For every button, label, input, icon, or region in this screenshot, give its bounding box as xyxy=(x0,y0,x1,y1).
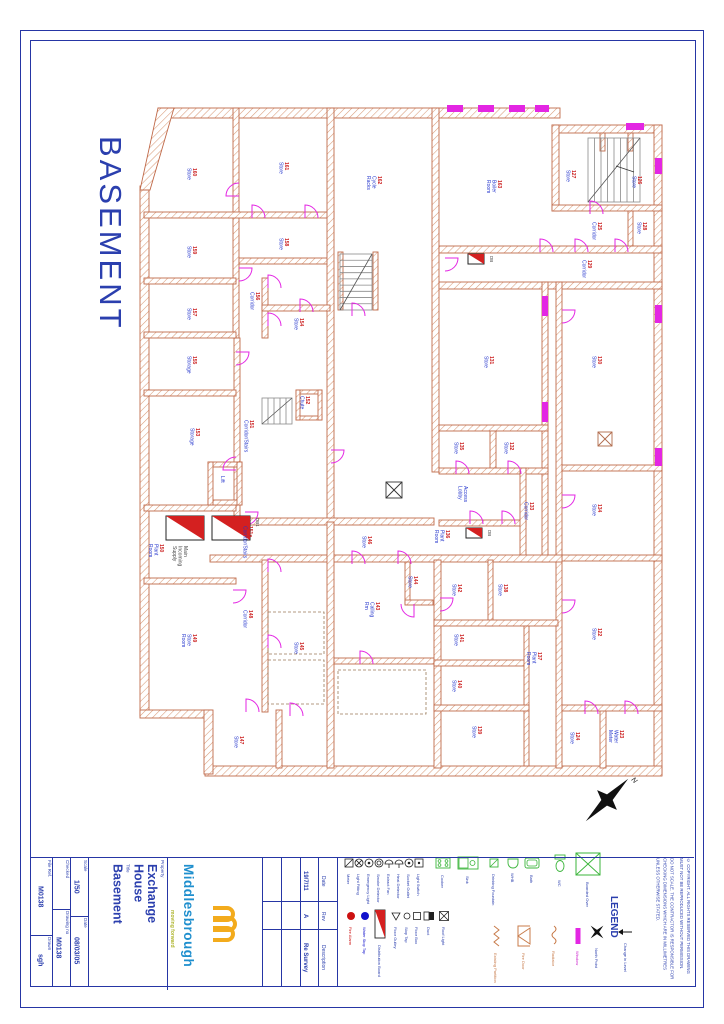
scale-value: 1/50 xyxy=(70,858,81,916)
copyright-block: © COPYRIGHT. ALL RIGHTS RESERVED THIS DR… xyxy=(645,858,691,982)
title-value: Basement xyxy=(110,860,124,988)
rev-row-date: 19/7/11 xyxy=(302,861,308,901)
logo-wordmark: Middlesbrough xyxy=(181,864,196,982)
file-ref-value: M0138 xyxy=(34,858,45,935)
drawing-no-value: M0138 xyxy=(52,909,63,986)
disclaimer-text: DO NOT SCALE. THE CONTRACTOR IS RESPONSI… xyxy=(651,858,675,982)
middlesbrough-logo-icon xyxy=(203,904,243,944)
property-title-cell: Property Exchange House Title Basement xyxy=(88,858,168,990)
date-value: 08/03/05 xyxy=(70,916,81,986)
scale-cell: Scale 1/50 xyxy=(70,858,89,917)
property-name-line2: House xyxy=(131,860,145,988)
drawn-value: sgh xyxy=(34,935,45,986)
rev-row-rev: A xyxy=(302,904,308,928)
drawing-sheet: DB1DBDB 160Store161Store159Store158Store… xyxy=(0,0,724,1024)
revision-table: Date Rev Description 19/7/11 A Re Survey xyxy=(262,858,338,986)
legend-title: LEGEND xyxy=(608,896,619,938)
title-label: Title xyxy=(124,860,131,988)
date-cell: Date 08/03/05 xyxy=(70,916,89,986)
sheet-title: BASEMENT xyxy=(92,136,128,331)
title-block: File Ref. M0138 Drawn sgh Checked Drawin… xyxy=(30,857,694,986)
copyright-text: © COPYRIGHT. ALL RIGHTS RESERVED THIS DR… xyxy=(674,858,691,982)
drawn-cell: Drawn sgh xyxy=(30,935,53,986)
property-name-line1: Exchange xyxy=(144,860,158,988)
rev-date-header: Date xyxy=(320,862,326,900)
rev-description-header: Description xyxy=(320,932,326,984)
rev-rev-header: Rev xyxy=(320,904,326,928)
file-ref-cell: File Ref. M0138 xyxy=(30,858,53,936)
inner-border xyxy=(30,40,696,987)
checked-cell: Checked xyxy=(52,858,71,910)
drawing-no-cell: Drawing no M0138 xyxy=(52,909,71,986)
logo-tagline: moving forward xyxy=(169,910,175,948)
logo-cell: Middlesbrough moving forward xyxy=(163,858,263,986)
rev-row-description: Re Survey xyxy=(302,932,308,984)
